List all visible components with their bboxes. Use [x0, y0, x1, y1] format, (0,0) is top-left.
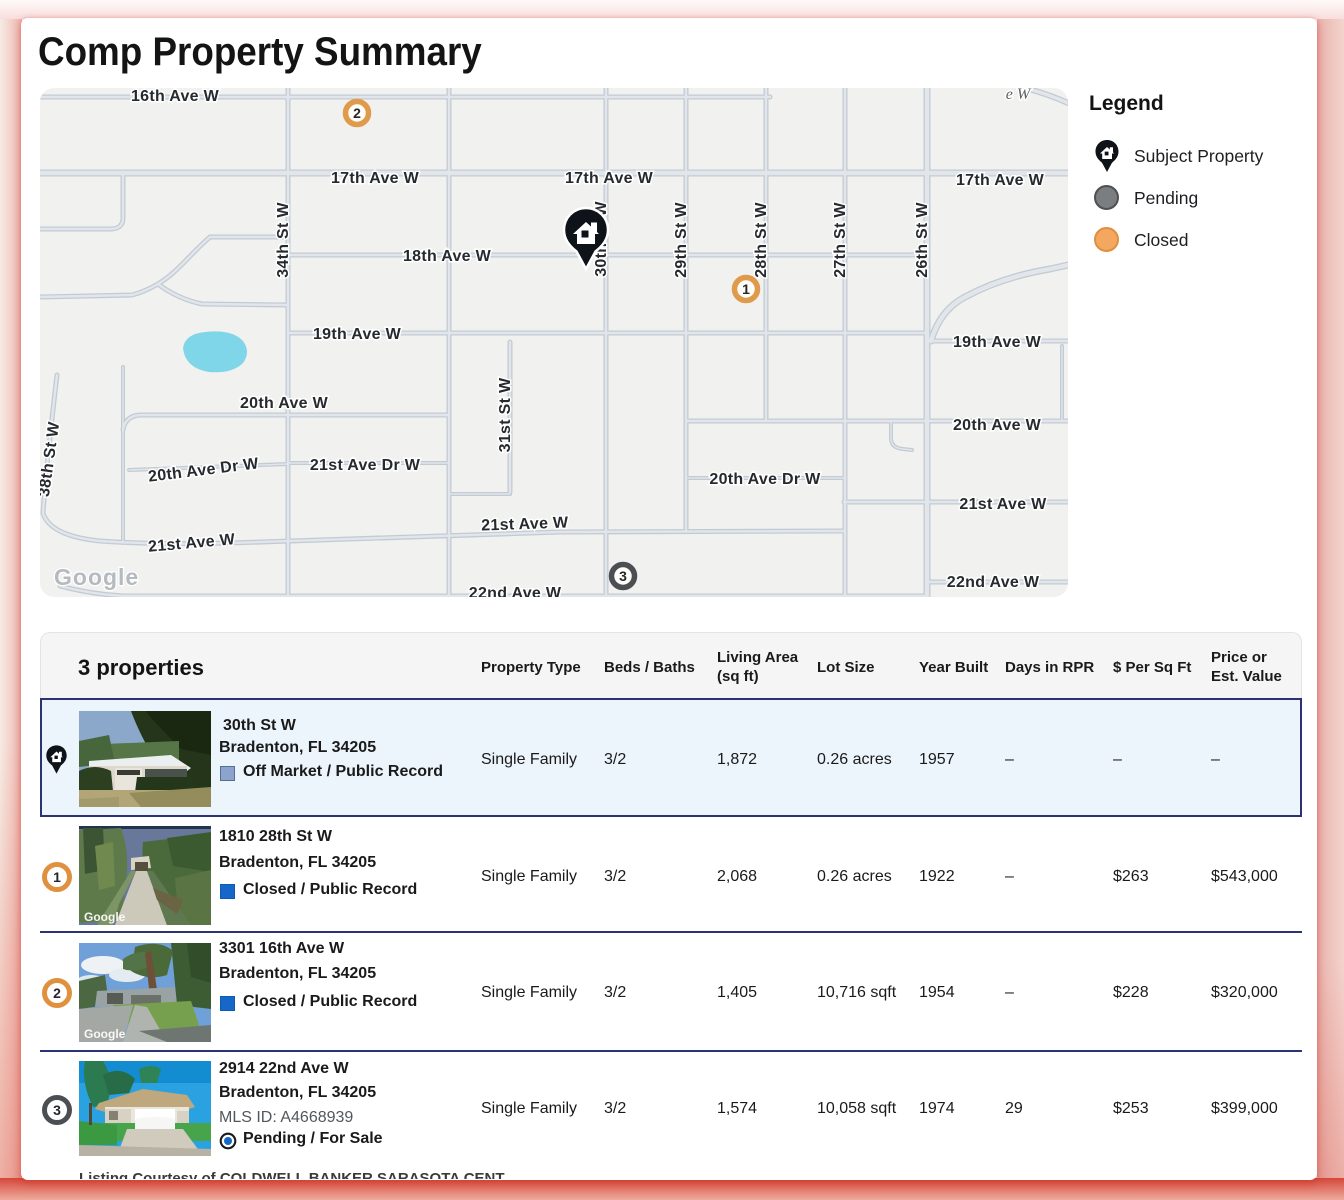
svg-text:Google: Google	[84, 910, 126, 924]
svg-text:e W: e W	[1006, 88, 1032, 103]
svg-text:22nd Ave W: 22nd Ave W	[469, 585, 562, 597]
svg-text:31st St W: 31st St W	[497, 377, 514, 452]
svg-text:28th St W: 28th St W	[753, 202, 770, 278]
svg-text:17th Ave W: 17th Ave W	[956, 172, 1045, 189]
svg-text:Google: Google	[54, 564, 139, 590]
svg-text:20th Ave Dr W: 20th Ave Dr W	[709, 471, 821, 488]
svg-text:21st Ave W: 21st Ave W	[959, 496, 1047, 513]
svg-text:34th St W: 34th St W	[275, 202, 292, 278]
svg-text:26th St W: 26th St W	[914, 202, 931, 278]
svg-text:29th St W: 29th St W	[673, 202, 690, 278]
svg-text:17th Ave W: 17th Ave W	[565, 170, 654, 187]
svg-text:Google: Google	[84, 1027, 126, 1041]
svg-text:19th Ave W: 19th Ave W	[953, 334, 1042, 351]
svg-text:27th St W: 27th St W	[832, 202, 849, 278]
svg-text:2: 2	[353, 105, 361, 121]
svg-text:1: 1	[742, 281, 750, 297]
svg-text:19th Ave W: 19th Ave W	[313, 326, 402, 343]
svg-text:21st Ave Dr W: 21st Ave Dr W	[310, 457, 421, 474]
svg-text:16th Ave W: 16th Ave W	[131, 88, 220, 105]
svg-text:22nd Ave W: 22nd Ave W	[947, 574, 1040, 591]
svg-text:17th Ave W: 17th Ave W	[331, 170, 420, 187]
svg-text:20th Ave W: 20th Ave W	[953, 417, 1042, 434]
svg-text:3: 3	[619, 568, 627, 584]
svg-text:21st Ave W: 21st Ave W	[481, 514, 569, 534]
svg-text:20th Ave W: 20th Ave W	[240, 395, 329, 412]
svg-text:18th Ave W: 18th Ave W	[403, 248, 492, 265]
